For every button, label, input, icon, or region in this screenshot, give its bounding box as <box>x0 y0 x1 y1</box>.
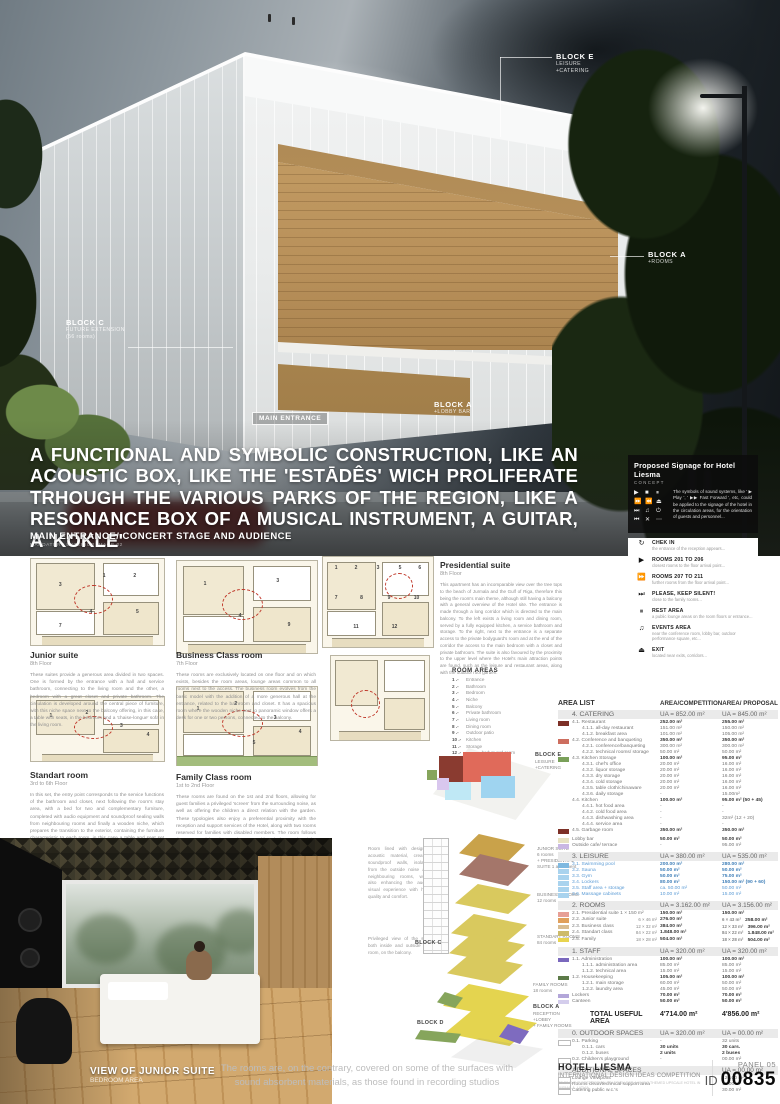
plan-room-number: 3 <box>59 582 62 588</box>
row-label: 4.3.1. chef's office <box>582 762 621 768</box>
section-competition-total: UA = 320.00 m² <box>660 948 722 955</box>
area-table-section-header: 4. CATERINGUA = 852.00 m²UA = 845.00 m² <box>558 710 778 719</box>
room-area-label: Balcony <box>466 704 482 711</box>
row-proposal-value: 16.00 m² <box>722 768 741 773</box>
color-swatch <box>558 938 569 943</box>
row-label: 1.2.1. main storage <box>582 981 624 987</box>
row-competition-value: - <box>660 804 722 810</box>
signage-symbol-icon: ■ <box>645 489 656 498</box>
col-area-list: AREA LIST <box>558 700 660 707</box>
signage-item: ♫EVENTS AREAnear the conference room, lo… <box>636 625 756 642</box>
row-label-cell: 0.1.1. cars <box>558 1045 660 1051</box>
armchair <box>16 998 72 1064</box>
row-competition-value: 70.00 m² <box>660 993 722 999</box>
plan-floor: 8th Floor <box>30 661 164 667</box>
plan-body: These suites provide a generous area div… <box>30 672 164 730</box>
axon-standart-floor <box>447 954 523 984</box>
row-proposal-cell: 15.00 m² <box>722 969 778 975</box>
plan-room-number: 1 <box>204 581 207 587</box>
fast-forward-icon: ⏩ <box>636 574 647 585</box>
row-proposal-value: 50.00 m² <box>722 981 741 986</box>
row-proposal-cell: 50.00 m² <box>722 987 778 993</box>
room-areas-title: ROOM AREAS <box>452 668 570 674</box>
section-competition-total: UA = 320.00 m² <box>660 1030 722 1037</box>
room-area-number: 4 .- <box>452 697 466 704</box>
row-proposal-cell: 30 cars. <box>722 1045 778 1051</box>
room-area-number: 6 .- <box>452 710 466 717</box>
color-swatch <box>558 739 569 744</box>
row-label: 3.5. Staff area + storage <box>572 886 625 892</box>
row-proposal-value: 16.00 m² <box>722 774 741 779</box>
plan-room <box>253 726 312 756</box>
area-table-row: 2.4. Standart class84 × 22 m²1.848.00 m²… <box>558 930 778 937</box>
section-proposal-total: UA = 535.00 m² <box>722 853 778 860</box>
row-label: 3.3. Gym <box>572 874 592 880</box>
row-label-cell: 4.3.4. cold storage <box>558 780 660 786</box>
row-proposal-value: 15.00m² <box>722 792 740 797</box>
row-proposal-cell: 150.00 m² <box>722 726 778 732</box>
person-with-guitar <box>186 950 212 980</box>
signage-intro-text: The symbols of sound systems, like ' ▶ P… <box>673 489 752 525</box>
row-competition-value: 20.00 m² <box>660 774 722 780</box>
row-label: 2.1. Presidential suite 1 × 150 m² <box>572 911 644 917</box>
row-competition-value: 1.848.00 m² <box>660 930 722 936</box>
row-label: Lobby bar <box>572 837 594 843</box>
signage-title: Proposed Signage for Hotel Liesma <box>634 461 752 479</box>
row-proposal-value: 50.00 m² <box>722 999 742 1004</box>
row-competition-value: 350.00 m² <box>660 738 722 744</box>
axon-label: BLOCK D <box>417 1020 444 1027</box>
row-proposal-cell: - <box>722 822 778 828</box>
row-proposal-cell: 16.00 m² <box>722 768 778 774</box>
row-proposal-cell: 70.00 m² <box>722 993 778 999</box>
plan-body: These rooms are exclusively located on o… <box>176 672 316 722</box>
row-competition-value: 50.00 m² <box>660 837 722 843</box>
row-proposal-value: 150.00 m² (90 + 60) <box>722 880 765 885</box>
row-proposal-cell: 85.00 m² <box>722 963 778 969</box>
row-proposal-cell: - <box>722 810 778 816</box>
row-competition-value: 20.00 m² <box>660 786 722 792</box>
row-proposal-value: 100.00 m² <box>722 975 744 980</box>
row-proposal-value: 504.00 m² <box>748 938 770 943</box>
axon-zone-pool <box>481 776 515 798</box>
row-proposal-cell: 350.00 m² <box>722 828 778 834</box>
leader-line <box>610 256 644 257</box>
signage-symbol-icon: ⏭ <box>634 507 645 516</box>
row-competition-value: 50.00 m² <box>660 868 722 874</box>
row-label-cell: 1.1.2. technical area <box>558 969 660 975</box>
row-proposal-cell: 16.00 m² <box>722 786 778 792</box>
row-label: 4.4. Kitchen <box>572 798 598 804</box>
plan-balcony <box>42 636 154 645</box>
skip-icon: ⏭ <box>636 591 647 602</box>
row-competition-note: 12 × 32 m² <box>636 924 660 930</box>
row-proposal-value: 50.00 m² <box>722 750 741 755</box>
speaker-icon <box>18 908 42 932</box>
row-competition-value: 60.00 m² <box>660 981 722 987</box>
axon-label-title: BLOCK A <box>533 1004 559 1010</box>
row-competition-value: 30 units <box>660 1045 722 1051</box>
signage-item-text: ROOMS 207 TO 211further rooms from the f… <box>652 574 729 585</box>
row-label: 4.5. Garbage room <box>572 828 613 834</box>
row-label: 2.3. Business class <box>572 924 614 930</box>
label-block-c: BLOCK C FUTURE EXTENSION (56 rooms) <box>66 318 136 341</box>
plan-room-number: 4 <box>89 609 92 615</box>
row-competition-value: 100.00 m² <box>660 756 722 762</box>
row-competition-value: 101.00 m² <box>660 732 722 738</box>
signage-item: ↻CHEK INthe entrance of the reception ap… <box>636 540 756 551</box>
row-competition-value: 276.00 m² <box>660 917 722 923</box>
row-competition-value: - <box>660 822 722 828</box>
row-proposal-value: 50.00 m² <box>722 886 741 891</box>
row-proposal-value: 32m² (12 + 20) <box>722 816 754 821</box>
color-swatch <box>558 925 569 930</box>
section-proposal-total: UA = 3.156.00 m² <box>722 902 778 909</box>
row-label: 3.6. Massage cabinets <box>572 892 621 898</box>
section-name: 0. OUTDOOR SPACES <box>558 1030 660 1037</box>
row-proposal-cell: - <box>722 804 778 810</box>
plan-room-number: 2 <box>133 573 136 579</box>
row-label-cell: 2.5. Family18 × 28 m² <box>558 937 660 943</box>
footer-id-block: PANEL 05 ID00835 <box>676 1060 776 1091</box>
street-lamp-arm <box>700 94 746 98</box>
room-area-item: 9 .-Outdoor patio <box>452 730 570 737</box>
section-name: 3. LEISURE <box>558 853 660 860</box>
plan-room <box>384 660 425 692</box>
signage-symbol-icon: ⏪ <box>645 498 656 507</box>
signage-symbol-grid: ▶■⏸⏩⏪⏏⏭♫⏻⏮✕⋯ <box>634 489 668 525</box>
plan-circulation-dash <box>222 589 263 620</box>
id-number: 00835 <box>721 1069 776 1090</box>
row-proposal-value: 105.00 m² <box>722 732 744 737</box>
axon-zone-green <box>427 770 437 780</box>
color-swatch <box>558 875 569 880</box>
area-table-section: 2. ROOMSUA = 3.162.00 m²UA = 3.156.00 m²… <box>558 901 778 944</box>
row-proposal-value: 100.00 m² <box>722 957 744 962</box>
row-competition-value: 10.00 m² <box>660 892 722 898</box>
axon-business-floor <box>455 884 531 914</box>
row-proposal-cell: 16.00 m² <box>722 762 778 768</box>
row-competition-note: 6 × 46 m² <box>638 917 660 923</box>
room-area-label: Niche <box>466 697 478 704</box>
row-label: 4.4.1. hot food area <box>582 804 624 810</box>
row-proposal-cell: 32 units <box>722 1039 778 1045</box>
area-table-section: 1. STAFFUA = 320.00 m²UA = 320.00 m²1.1.… <box>558 947 778 1005</box>
row-competition-value: 200.00 m² <box>660 862 722 868</box>
signage-symbol-icon: ♫ <box>645 507 656 516</box>
row-label-cell: 3.1. Swimming pool <box>558 862 660 868</box>
signage-item-desc: near the conference room, lobby bar, out… <box>652 631 756 642</box>
pause-icon: ⏸ <box>636 608 647 619</box>
row-label: 4.2. Conference and banqueting <box>572 738 642 744</box>
signage-item-text: REST AREAa public lounge areas on the ro… <box>652 608 753 619</box>
color-swatch <box>558 757 569 762</box>
signage-symbol-icon: ✕ <box>645 516 656 525</box>
signage-item-desc: closest rooms to the floor arrival point… <box>652 563 725 568</box>
signage-item-desc: close to the family rooms... <box>652 597 715 602</box>
forest-view <box>66 884 254 984</box>
room-area-number: 2 .- <box>452 684 466 691</box>
row-label-cell: 3.3. Gym <box>558 874 660 880</box>
row-label-cell: 4.3.2. liquor storage <box>558 768 660 774</box>
row-competition-value: - <box>660 1039 722 1045</box>
row-proposal-cell: 16.00 m² <box>722 774 778 780</box>
area-table-section: 4. CATERINGUA = 852.00 m²UA = 845.00 m²4… <box>558 710 778 849</box>
color-swatch <box>558 931 569 936</box>
row-proposal-value: 70.00 m² <box>722 993 742 998</box>
row-proposal-value: 2 buses <box>722 1051 740 1056</box>
color-swatch <box>558 838 569 843</box>
row-label-cell: 4.3.3. dry storage <box>558 774 660 780</box>
color-swatch <box>558 918 569 923</box>
plan-room <box>327 611 375 636</box>
row-label-cell: 1.2.1. main storage <box>558 981 660 987</box>
row-label: 4.3.2. liquor storage <box>582 768 625 774</box>
total-label: TOTAL USEFUL AREA <box>558 1011 660 1025</box>
row-label-cell: 4.4.3. dishwashing area <box>558 816 660 822</box>
row-label: 3.1. Swimming pool <box>572 862 615 868</box>
row-label: 0.1.1. cars <box>582 1045 605 1051</box>
axon-zone-cafe <box>437 778 449 790</box>
row-label: Canteen <box>572 999 591 1005</box>
row-proposal-cell: 100.00 m² <box>722 975 778 981</box>
row-label-cell: 4.1.1. all-day restaurant <box>558 726 660 732</box>
row-proposal-cell: 150.00 m² <box>722 911 778 917</box>
plan-room-number: 3 <box>276 578 279 584</box>
color-swatch <box>558 958 569 963</box>
row-label-cell: 4.2.2. technical rooms/ storage <box>558 750 660 756</box>
plan-room <box>103 563 159 596</box>
color-swatch <box>558 994 569 999</box>
row-label-cell: 4.1.2. breakfast area <box>558 732 660 738</box>
room-area-label: Dining room <box>466 724 491 731</box>
plan-room-number: 8 <box>360 595 363 601</box>
area-table-section-header: 2. ROOMSUA = 3.162.00 m²UA = 3.156.00 m² <box>558 901 778 910</box>
plan-room-number: 11 <box>353 624 358 630</box>
row-label: 4.2.2. technical rooms/ storage <box>582 750 649 756</box>
plan-room-number: 10 <box>414 595 420 601</box>
row-competition-value: 384.00 m² <box>660 924 722 930</box>
row-label-cell: 3.5. Staff area + storage <box>558 886 660 892</box>
row-label: 4.4.2. cold food area <box>582 810 627 816</box>
plan-room <box>103 729 159 753</box>
id-label: ID <box>705 1073 718 1088</box>
area-table-section: 0. OUTDOOR SPACESUA = 320.00 m²UA = 00.0… <box>558 1029 778 1063</box>
plan-title: Standart room <box>30 770 164 780</box>
row-label: 0.1.2. buses <box>582 1051 609 1057</box>
plan-text-presidential-suite: Presidential suite 8th Floor This apartm… <box>440 560 562 677</box>
row-label-cell: 2.4. Standart class84 × 22 m² <box>558 930 660 936</box>
plan-room-number: 9 <box>288 622 291 628</box>
bed <box>100 974 260 1044</box>
person-on-roof <box>292 17 295 25</box>
color-swatch <box>558 887 569 892</box>
row-label-cell: 0.1.2. buses <box>558 1051 660 1057</box>
row-label-cell: 4.3. Kitchen Storage <box>558 756 660 762</box>
plan-room <box>382 602 428 636</box>
room-area-item: 7 .-Living room <box>452 717 570 724</box>
section-competition-total: UA = 3.162.00 m² <box>660 902 722 909</box>
plan-room-number: 5 <box>253 740 256 746</box>
plan-room <box>36 611 95 635</box>
row-label-cell: 4.4. Kitchen <box>558 798 660 804</box>
section-competition-total: UA = 380.00 m² <box>660 853 722 860</box>
plan-room-number: 4 <box>147 732 150 738</box>
row-proposal-cell: 50.00 m² <box>722 999 778 1005</box>
row-label: 4.1. Restaurant <box>572 720 605 726</box>
label-main-entrance: MAIN ENTRANCE <box>252 412 328 425</box>
row-proposal-value: 396.00 m² <box>748 925 770 930</box>
leader-line <box>500 57 501 137</box>
row-label: 1.2. Housekeeping <box>572 975 613 981</box>
row-competition-value: 105.00 m² <box>660 975 722 981</box>
label-block-a-lobby: BLOCK A +LOBBY BAR <box>434 400 504 416</box>
total-proposal-value: 4'856.00 m² <box>722 1011 778 1025</box>
row-competition-value: - <box>660 792 722 798</box>
row-label: Lockers <box>572 993 589 999</box>
panoramic-window <box>62 880 258 988</box>
row-proposal-note: 12 × 33 m² <box>722 924 748 929</box>
exploded-axonometric-diagram: BLOCK ELEISURE+CATERINGJUNIOR SUITE6 roo… <box>415 742 580 1064</box>
row-label-cell: 4.2.1. conference/banqueting <box>558 744 660 750</box>
signage-item: ⏸REST AREAa public lounge areas on the r… <box>636 608 756 619</box>
area-table-total-row: TOTAL USEFUL AREA4'714.00 m²4'856.00 m² <box>558 1011 778 1025</box>
row-proposal-cell: 50.00 m² <box>722 886 778 892</box>
play-icon: ▶ <box>636 557 647 568</box>
hero-caption: MAIN ENTRANCE/ CONCERT STAGE AND AUDIENC… <box>30 531 292 548</box>
plan-body: This apartment has an incomparable view … <box>440 582 562 677</box>
room-area-item: 3 .-Bedroom <box>452 690 570 697</box>
row-proposal-value: 85.00 m² <box>722 963 741 968</box>
row-label-cell: 1.1.1. administration area <box>558 963 660 969</box>
row-competition-value: 15.00 m² <box>660 969 722 975</box>
row-label-cell: Lobby bar <box>558 837 660 843</box>
area-table-section: 3. LEISUREUA = 380.00 m²UA = 535.00 m²3.… <box>558 852 778 898</box>
label-block-a-rooms: BLOCK A +ROOMS <box>648 250 718 266</box>
competition-panel: BLOCK C FUTURE EXTENSION (56 rooms) BLOC… <box>0 0 780 1104</box>
row-label-cell: 4.1. Restaurant <box>558 720 660 726</box>
row-label-cell: 4.2. Conference and banqueting <box>558 738 660 744</box>
row-label-cell: 0.1. Parking <box>558 1039 660 1045</box>
row-proposal-value: - <box>722 822 724 827</box>
plan-floor: 8th Floor <box>440 571 562 577</box>
row-proposal-note: 6 × 43 m² <box>722 917 745 922</box>
room-area-label: Bathroom <box>466 684 486 691</box>
signage-symbol-icon: ⏻ <box>656 507 667 516</box>
leader-line <box>128 347 233 348</box>
signage-concept-box: Proposed Signage for Hotel Liesma CONCEP… <box>628 455 758 533</box>
signage-item: ⏏EXITlocated near exits, corridors... <box>636 647 756 658</box>
row-label: 1.2.2. laundry area <box>582 987 623 993</box>
row-label-cell: 3.2. Sauna <box>558 868 660 874</box>
area-table-row: 4.5. Garbage room350.00 m²350.00 m² <box>558 828 778 834</box>
row-proposal-value: 50.00 m² <box>722 868 742 873</box>
axon-block-c-tower <box>423 838 449 954</box>
row-competition-value: 300.00 m² <box>660 744 722 750</box>
speaker-icon <box>20 948 40 968</box>
row-label: 4.3. Kitchen Storage <box>572 756 616 762</box>
plan-garden-strip <box>177 756 317 766</box>
row-label: 1.1.1. administration area <box>582 963 637 969</box>
row-proposal-value: 15.00 m² <box>722 892 741 897</box>
row-proposal-cell: 95.00 m² (50 + 45) <box>722 798 778 804</box>
row-label: 1.1.2. technical area <box>582 969 626 975</box>
row-competition-value: 85.00 m² <box>660 963 722 969</box>
row-competition-note: 18 × 28 m² <box>636 937 660 943</box>
area-table-row: 2.2. Junior suite6 × 46 m²276.00 m²6 × 4… <box>558 917 778 924</box>
signage-item-desc: further rooms from the floor arrival poi… <box>652 580 729 585</box>
room-area-label: Private bathroom <box>466 710 501 717</box>
plan-room-number: 6 <box>418 565 421 571</box>
tree-blob <box>76 914 136 964</box>
signage-item: ⏭PLEASE, KEEP SILENT!close to the family… <box>636 591 756 602</box>
color-swatch <box>558 881 569 886</box>
plan-floor: 3rd to 6th Floor <box>30 781 164 787</box>
row-proposal-value: 95.00 m² <box>722 756 742 761</box>
signage-symbol-icon: ⏏ <box>656 498 667 507</box>
plan-room <box>384 698 425 730</box>
row-proposal-cell: 18 × 28 m² 504.00 m² <box>722 937 778 944</box>
room-area-label: Outdoor patio <box>466 730 494 737</box>
axon-label-title: BLOCK C <box>415 940 442 946</box>
row-proposal-value: 32 units <box>722 1039 739 1044</box>
row-competition-value: - <box>660 810 722 816</box>
plan-room-number: 3 <box>377 565 380 571</box>
row-proposal-value: 50.00 m² <box>722 837 742 842</box>
row-proposal-cell: 50.00 m² <box>722 981 778 987</box>
signage-symbol-icon: ⏩ <box>634 498 645 507</box>
room-area-item: 5 .-Balcony <box>452 704 570 711</box>
row-proposal-note: 84 × 22 m² <box>722 930 748 935</box>
row-label: Outside cafe/ terrace <box>572 843 617 849</box>
row-label: 4.2.1. conference/banqueting <box>582 744 645 750</box>
row-proposal-cell: 95.00 m² <box>722 756 778 762</box>
room-area-item: 1 .-Entrance <box>452 677 570 684</box>
axon-presidential-floor <box>459 854 529 886</box>
row-competition-value: 2 units <box>660 1051 722 1057</box>
section-name: 4. CATERING <box>558 711 660 718</box>
row-proposal-cell: 2 buses <box>722 1051 778 1057</box>
plan-room <box>253 566 312 601</box>
row-proposal-value: 350.00 m² <box>722 738 744 743</box>
row-label-cell: 2.1. Presidential suite 1 × 150 m² <box>558 911 660 917</box>
row-label-cell: 1.1. Administration <box>558 957 660 963</box>
row-competition-value: 100.00 m² <box>660 957 722 963</box>
plan-circulation-dash <box>74 585 113 615</box>
color-swatch <box>558 893 569 898</box>
area-table-row: Canteen50.00 m²50.00 m² <box>558 999 778 1005</box>
row-proposal-value: 1.848.00 m² <box>748 931 774 936</box>
signage-item-title: PLEASE, KEEP SILENT! <box>652 591 715 597</box>
color-swatch <box>558 1000 569 1005</box>
row-label-cell: Outside cafe/ terrace <box>558 843 660 849</box>
row-label-cell: 2.3. Business class12 × 32 m² <box>558 924 660 930</box>
plan-room-number: 9 <box>388 595 391 601</box>
signage-item-list: ↻CHEK INthe entrance of the reception ap… <box>628 538 758 668</box>
row-proposal-value: 300.00 m² <box>722 744 744 749</box>
row-competition-value: 20.00 m² <box>660 768 722 774</box>
plan-title: Presidential suite <box>440 560 562 570</box>
col-area-proposal: AREA/ PROPOSAL <box>722 700 778 707</box>
plan-room-number: 12 <box>392 624 398 630</box>
area-table-header: AREA LIST AREA/COMPETITION AREA/ PROPOSA… <box>558 700 778 707</box>
section-name: 2. ROOMS <box>558 902 660 909</box>
plan-circulation-dash <box>351 690 380 719</box>
row-competition-value: 150.00 m² <box>660 911 722 917</box>
music-note-icon: ♫ <box>636 625 647 642</box>
row-label: 2.2. Junior suite <box>572 917 607 923</box>
row-proposal-note: 18 × 28 m² <box>722 937 748 942</box>
